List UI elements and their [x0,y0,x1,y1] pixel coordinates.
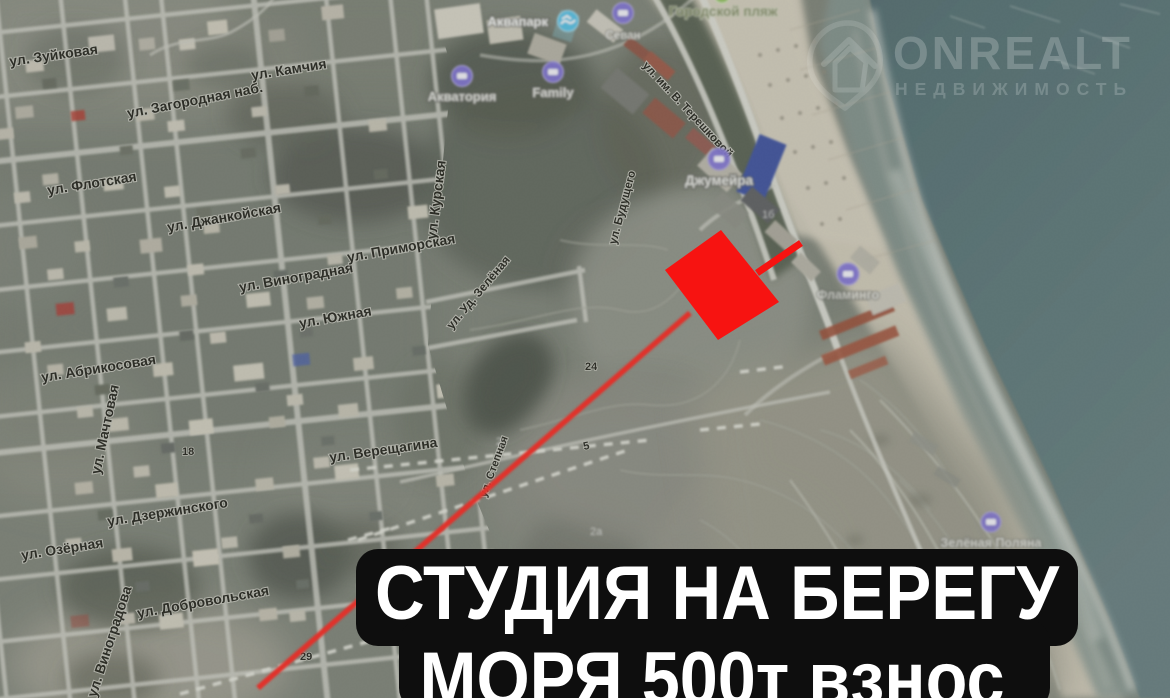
svg-text:ONREALT: ONREALT [893,27,1133,79]
svg-text:МОРЯ 500т взнос: МОРЯ 500т взнос [420,637,1005,698]
svg-text:НЕДВИЖИМОСТЬ: НЕДВИЖИМОСТЬ [895,79,1133,99]
svg-text:СТУДИЯ НА БЕРЕГУ: СТУДИЯ НА БЕРЕГУ [375,551,1060,636]
